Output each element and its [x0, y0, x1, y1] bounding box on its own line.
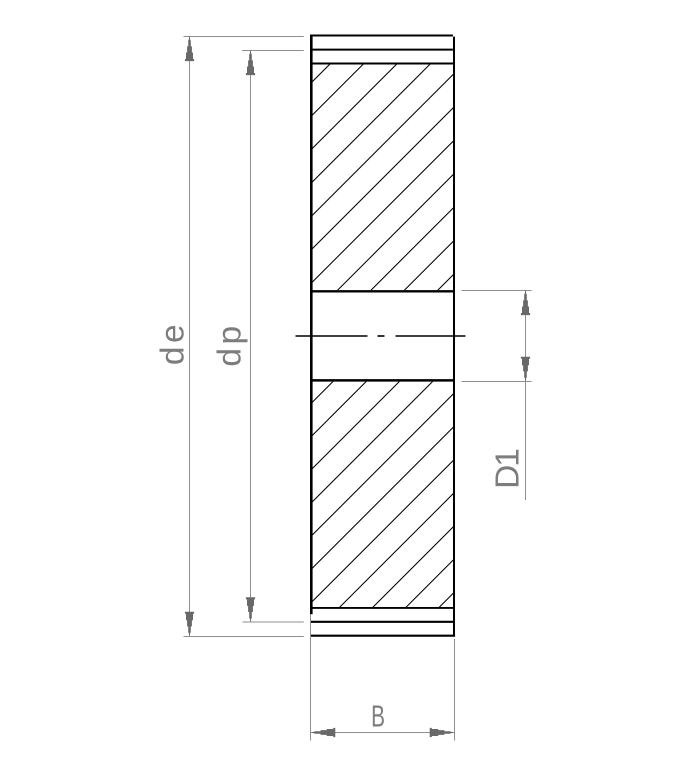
svg-text:de: de: [155, 321, 192, 365]
svg-text:D1: D1: [490, 450, 527, 489]
svg-text:dp: dp: [212, 322, 249, 366]
svg-text:B: B: [371, 698, 385, 733]
